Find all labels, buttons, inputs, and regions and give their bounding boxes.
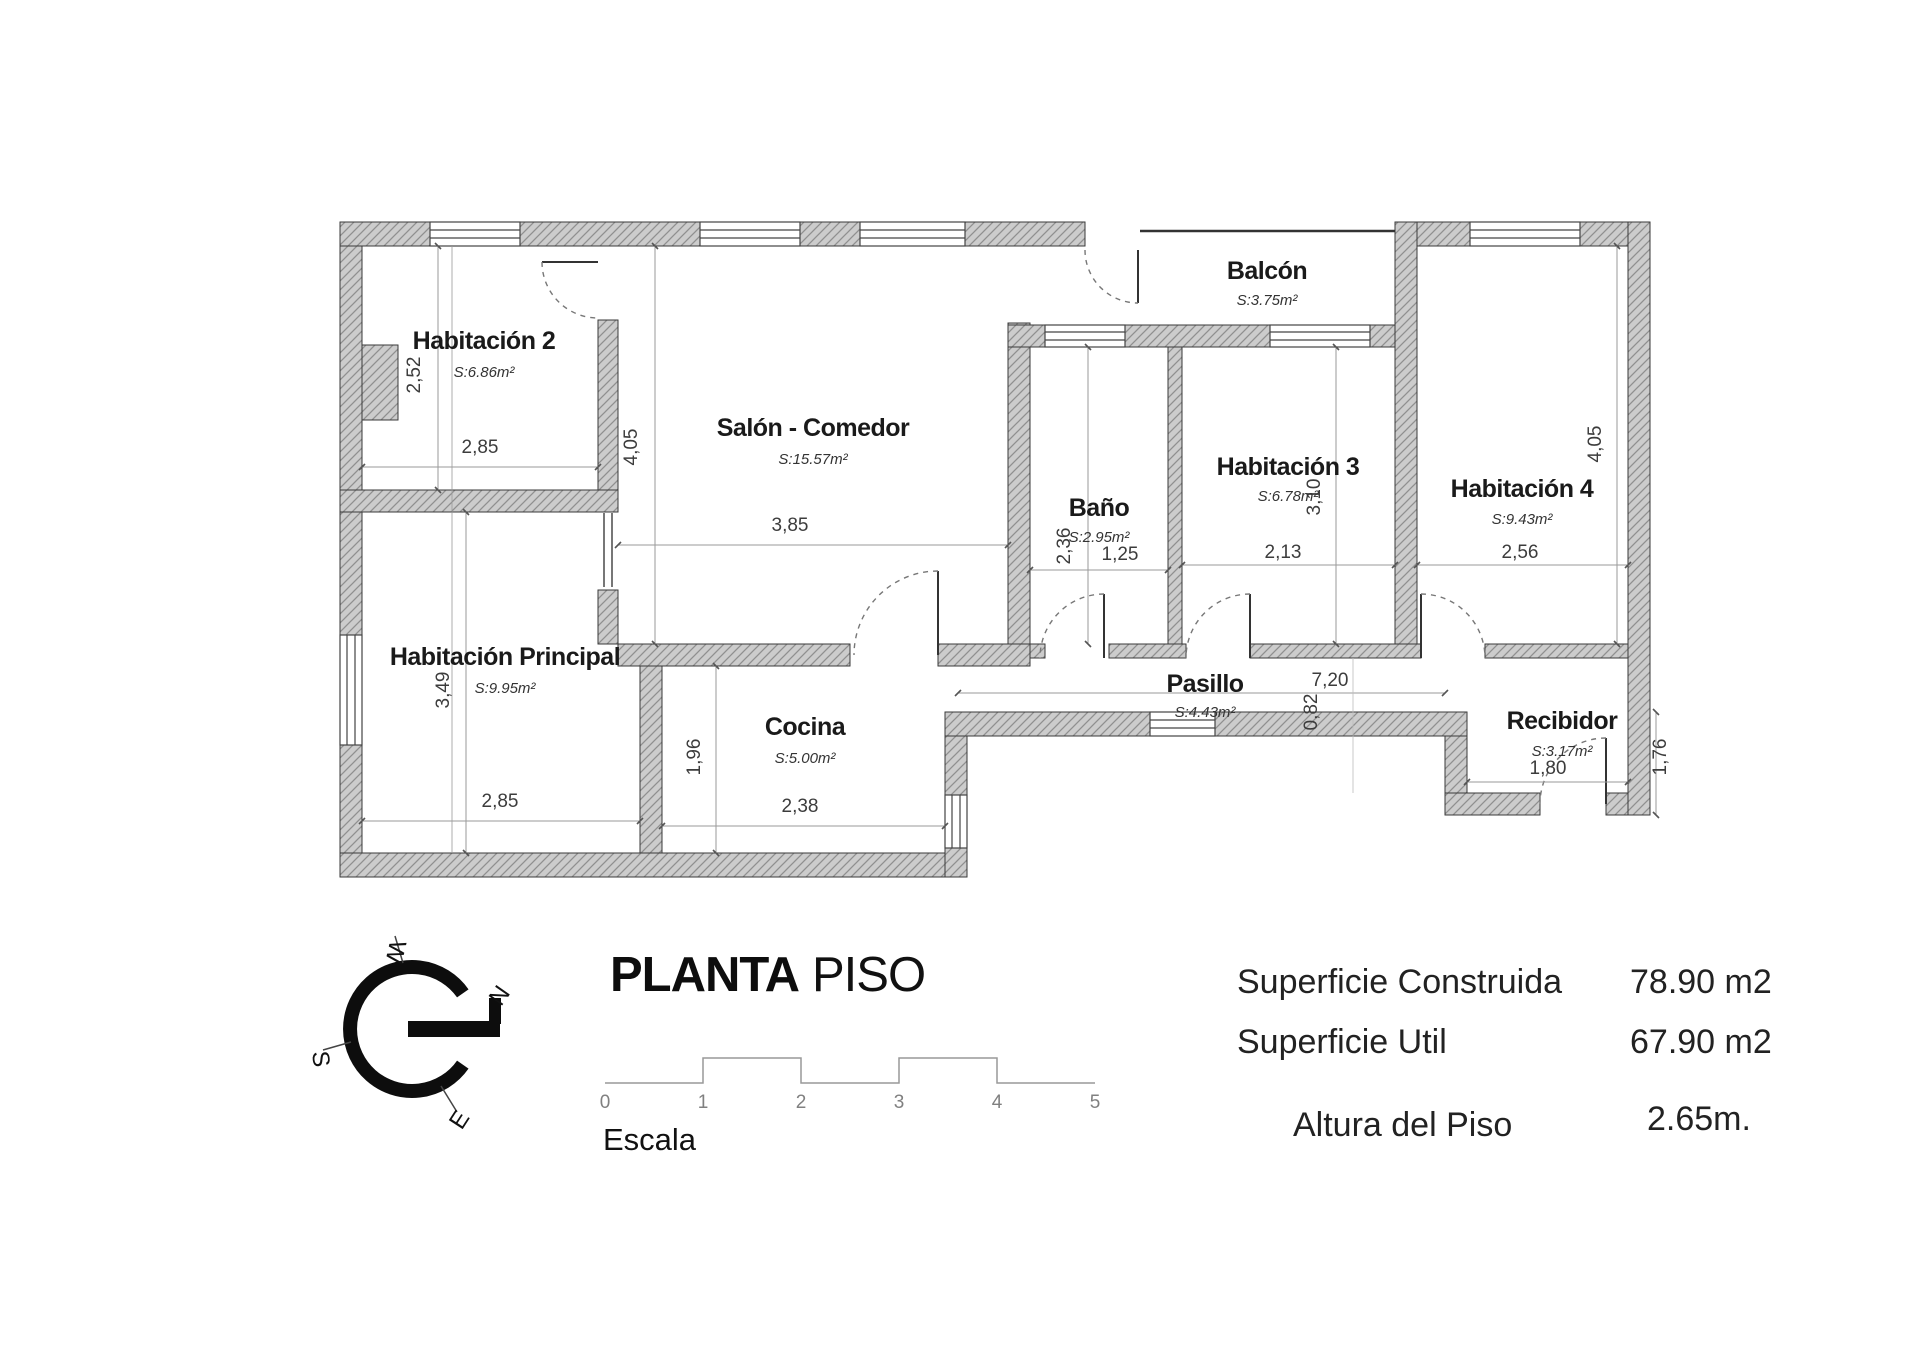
dimension-labels: 2,85 2,52 3,85 4,05 2,85 3,49 2,38 1,96 … <box>404 357 1671 817</box>
room-label-hab2: Habitación 2 <box>413 327 556 355</box>
sliding-door-principal <box>604 513 612 587</box>
room-label-principal: Habitación Principal <box>390 643 620 671</box>
window-hab3 <box>1270 325 1370 347</box>
door-hab3 <box>1186 594 1250 658</box>
stat-altura-value: 2.65m. <box>1647 1100 1751 1138</box>
room-label-hab4: Habitación 4 <box>1451 475 1594 503</box>
stat-util-label: Superficie Util <box>1237 1023 1447 1061</box>
door-bano <box>1040 594 1104 658</box>
window-cocina <box>945 795 967 848</box>
dim-hab2-width: 2,85 <box>462 437 499 458</box>
scale-mark-5: 5 <box>1090 1092 1101 1113</box>
floor-plan-page: 2,85 2,52 3,85 4,05 2,85 3,49 2,38 1,96 … <box>0 0 1920 1345</box>
dim-recibidor-width: 1,80 <box>1530 758 1567 779</box>
dim-hab3-width: 2,13 <box>1265 542 1302 563</box>
scale-mark-3: 3 <box>894 1092 905 1113</box>
door-hab4 <box>1421 594 1485 658</box>
dim-hab2-height: 2,52 <box>404 357 425 394</box>
scale-label: Escala <box>603 1122 697 1157</box>
stat-util-value: 67.90 m2 <box>1630 1023 1772 1061</box>
room-label-pasillo: Pasillo <box>1166 670 1243 698</box>
stat-altura-label: Altura del Piso <box>1293 1106 1512 1144</box>
room-area-hab3: S:6.78m² <box>1258 488 1320 505</box>
room-label-balcon: Balcón <box>1227 257 1307 285</box>
page-title-bold: PLANTA <box>610 948 800 1002</box>
room-area-recibidor: S:3.17m² <box>1532 743 1594 760</box>
scale-mark-1: 1 <box>698 1092 709 1113</box>
room-label-salon: Salón - Comedor <box>717 414 910 442</box>
room-area-pasillo: S:4.43m² <box>1175 704 1237 721</box>
compass-south: S <box>306 1049 335 1068</box>
door-hab2 <box>542 262 598 318</box>
door-balcon <box>1085 250 1138 303</box>
dim-cocina-height: 1,96 <box>684 739 705 776</box>
area-statistics: Superficie Construida 78.90 m2 Superfici… <box>1237 963 1772 1144</box>
scale-mark-4: 4 <box>992 1092 1003 1113</box>
dim-pasillo-width: 7,20 <box>1312 670 1349 691</box>
dim-pasillo-height: 0,82 <box>1301 694 1322 731</box>
room-area-salon: S:15.57m² <box>778 451 848 468</box>
dim-principal-height: 3,49 <box>433 672 454 709</box>
compass-north: N <box>484 981 516 1011</box>
room-area-principal: S:9.95m² <box>475 680 537 697</box>
stat-construida-value: 78.90 m2 <box>1630 963 1772 1001</box>
dim-bano-width: 1,25 <box>1102 544 1139 565</box>
scale-bar: 0 1 2 3 4 5 Escala <box>600 1058 1101 1157</box>
room-label-hab3: Habitación 3 <box>1217 453 1360 481</box>
dim-hab4-width: 2,56 <box>1502 542 1539 563</box>
scale-mark-0: 0 <box>600 1092 611 1113</box>
title-block: PLANTA PISO <box>610 948 925 1002</box>
room-area-balcon: S:3.75m² <box>1237 292 1299 309</box>
room-area-hab4: S:9.43m² <box>1492 511 1554 528</box>
walls <box>340 222 1650 877</box>
dim-recibidor-height: 1,76 <box>1650 739 1671 776</box>
floor-plan-drawing: 2,85 2,52 3,85 4,05 2,85 3,49 2,38 1,96 … <box>0 0 1920 1345</box>
dim-salon-height: 4,05 <box>621 429 642 466</box>
compass-west: W <box>380 938 411 966</box>
dim-principal-width: 2,85 <box>482 791 519 812</box>
window-salon <box>700 222 800 246</box>
room-area-cocina: S:5.00m² <box>775 750 837 767</box>
dim-cocina-width: 2,38 <box>782 796 819 817</box>
room-area-bano: S:2.95m² <box>1069 529 1131 546</box>
room-label-bano: Baño <box>1069 494 1130 522</box>
dim-salon-width: 3,85 <box>772 515 809 536</box>
door-cocina <box>854 571 938 655</box>
window-bano <box>1045 325 1125 347</box>
compass-east: E <box>444 1106 475 1134</box>
page-title-regular: PISO <box>812 948 925 1002</box>
compass-icon: W N S E <box>306 936 516 1134</box>
stat-construida-label: Superficie Construida <box>1237 963 1562 1001</box>
window-hab4 <box>1470 222 1580 246</box>
room-label-cocina: Cocina <box>765 713 847 741</box>
room-label-recibidor: Recibidor <box>1507 707 1619 735</box>
window-salon-2 <box>860 222 965 246</box>
dim-hab4-height: 4,05 <box>1585 426 1606 463</box>
scale-mark-2: 2 <box>796 1092 807 1113</box>
room-area-hab2: S:6.86m² <box>454 364 516 381</box>
window-hab2 <box>430 222 520 246</box>
window-principal <box>340 635 362 745</box>
